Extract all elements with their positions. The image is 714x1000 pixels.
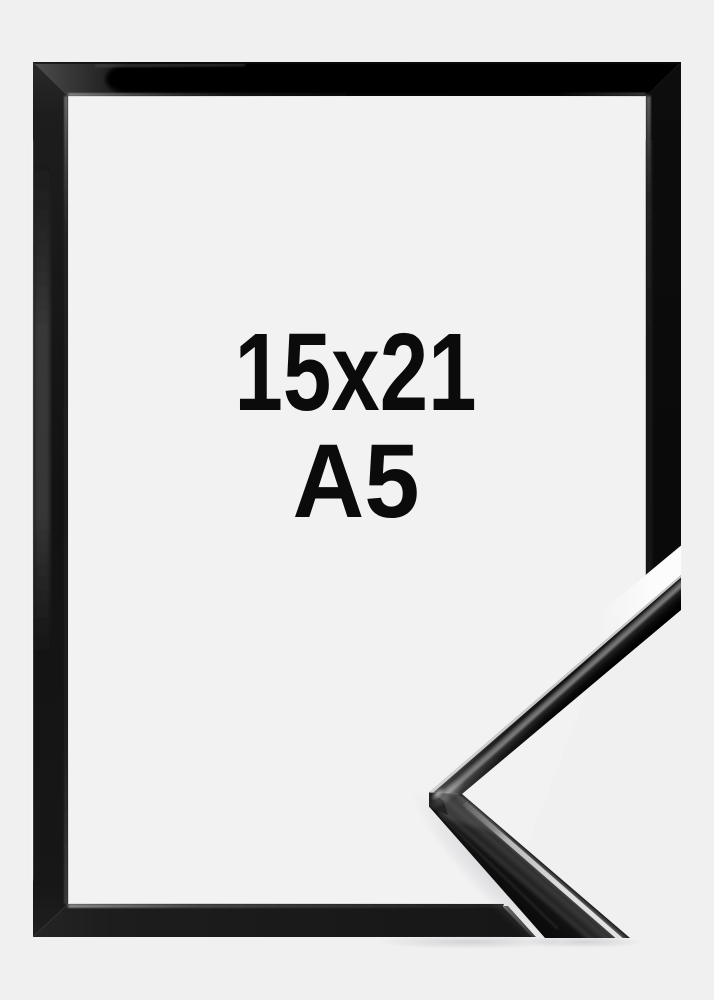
- svg-text:15x21: 15x21: [235, 311, 477, 434]
- svg-text:A5: A5: [293, 423, 420, 540]
